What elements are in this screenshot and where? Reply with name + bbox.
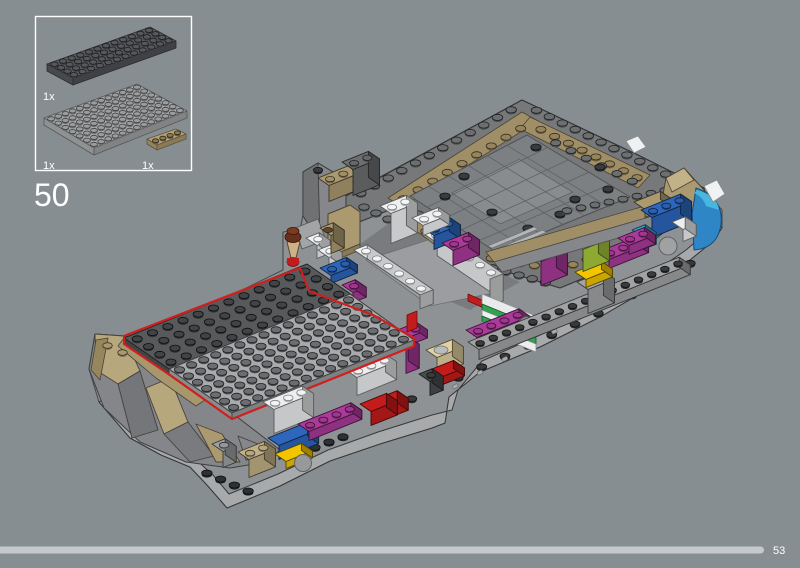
svg-text:1x: 1x (142, 160, 154, 172)
svg-text:53: 53 (773, 545, 785, 557)
svg-text:1x: 1x (43, 91, 55, 103)
svg-text:50: 50 (34, 177, 70, 213)
svg-text:1x: 1x (43, 160, 55, 172)
